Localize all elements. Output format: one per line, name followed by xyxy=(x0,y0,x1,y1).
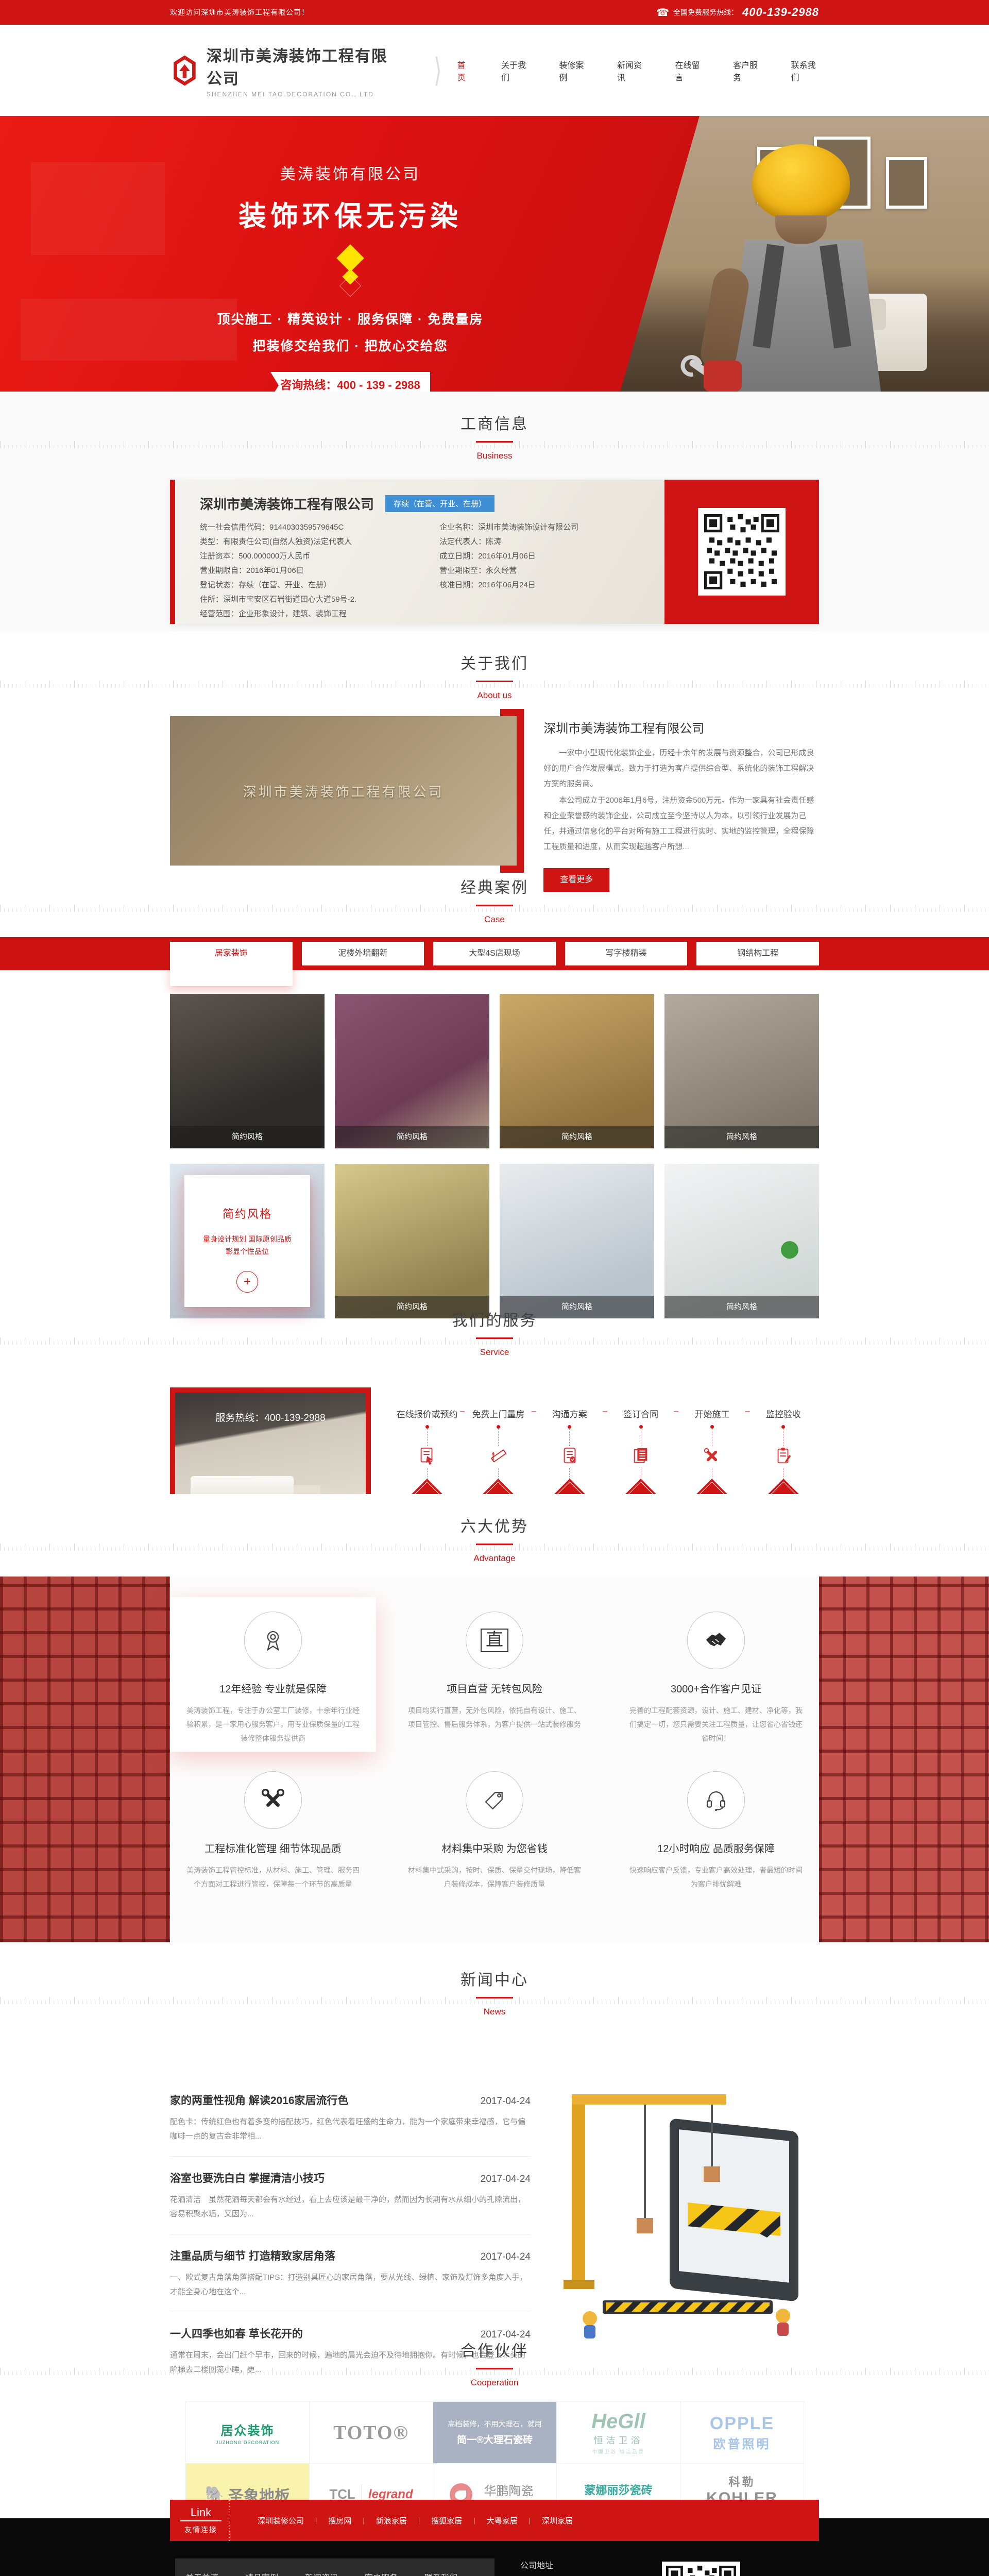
case-tab-strip: 居家装饰 泥楼外墙翻新 大型4S店现场 写字楼精装 钢结构工程 xyxy=(0,937,989,970)
news-illustration xyxy=(541,2084,819,2342)
footer: Link 友情连接 深圳装修公司| 搜房网| 新浪家居| 搜狐家居| 大粤家居|… xyxy=(0,2518,989,2576)
cases-title: 经典案例 xyxy=(0,875,989,897)
tab-office-finishing[interactable]: 写字楼精装 xyxy=(565,942,688,965)
about-subtitle: About us xyxy=(0,690,989,701)
page: 欢迎访问深圳市美涛装饰工程有限公司！ ☎ 全国免费服务热线： 400-139-2… xyxy=(0,0,989,2576)
diamond-icon xyxy=(335,248,366,289)
case-card[interactable]: 简约风格 xyxy=(335,994,489,1148)
logo[interactable]: 深圳市美涛装饰工程有限公司 SHENZHEN MEI TAO DECORATIO… xyxy=(170,43,403,98)
tag-icon xyxy=(466,1771,523,1829)
service-subtitle: Service xyxy=(0,1347,989,1358)
news-subtitle: News xyxy=(0,2007,989,2017)
business-qr-block xyxy=(664,480,819,624)
section-advantages: 六大优势 Advantage 12年经验 专业就是保障 美涛装饰工程，专注于办公… xyxy=(0,1494,989,1947)
nav-contact[interactable]: 联系我们 xyxy=(791,58,820,83)
news-item[interactable]: 浴室也要洗白白 掌握清洁小技巧2017-04-24 花洒清洁 虽然花洒每天都会有… xyxy=(170,2157,531,2234)
banner-company: 美涛装饰有限公司 xyxy=(206,161,494,184)
footer-col-contact: 联系我们 联系方式 在线留言 xyxy=(424,2571,484,2576)
friend-links-bar: Link 友情连接 深圳装修公司| 搜房网| 新浪家居| 搜狐家居| 大粤家居|… xyxy=(170,2500,819,2541)
about-heading: 深圳市美涛装饰工程有限公司 xyxy=(543,718,819,736)
header: 深圳市美涛装饰工程有限公司 SHENZHEN MEI TAO DECORATIO… xyxy=(0,25,989,116)
plan-icon xyxy=(560,1446,579,1468)
friend-link[interactable]: 搜狐家居 xyxy=(420,2515,473,2526)
business-info-left: 统一社会信用代码：9144030359579645C 类型：有限责任公司(自然人… xyxy=(200,520,439,621)
status-badge: 存续（在营、开业、在册） xyxy=(385,495,494,512)
partner-hegll[interactable]: HeGll恒洁卫浴中国卫浴 恒洁品质 xyxy=(557,2402,680,2464)
qr-code xyxy=(698,508,786,596)
service-hotline: 服务热线：400-139-2988 xyxy=(175,1410,366,1424)
advantage-card: 工程标准化管理 细节体现品质 美涛装饰工程管控标准，从材料、施工、管理、服务四个… xyxy=(170,1757,376,1911)
contract-icon xyxy=(631,1446,651,1468)
advantage-card: 直 项目直营 无转包风险 项目均实行直营，无外包风险，依托自有设计、施工、项目管… xyxy=(391,1597,598,1752)
logo-icon xyxy=(170,55,199,87)
partners-title: 合作伙伴 xyxy=(0,2338,989,2361)
phone-icon: ☎ xyxy=(656,6,669,19)
inspection-icon xyxy=(774,1446,793,1468)
friend-link[interactable]: 深圳装修公司 xyxy=(246,2515,315,2526)
business-title: 工商信息 xyxy=(0,411,989,434)
tab-steel-structure[interactable]: 钢结构工程 xyxy=(696,942,819,965)
business-card: 深圳市美涛装饰工程有限公司 存续（在营、开业、在册） 统一社会信用代码：9144… xyxy=(170,480,819,624)
wall-frame xyxy=(886,157,927,209)
advantage-card: 12小时响应 品质服务保障 快速响应客户反馈，专业客户高效处理，者最短的时间为客… xyxy=(613,1757,819,1911)
hotline-number: 400-139-2988 xyxy=(742,6,819,19)
headset-icon xyxy=(687,1771,745,1829)
worker-illustration xyxy=(716,144,886,392)
banner-hotline-button[interactable]: 咨询热线：400 - 139 - 2988 xyxy=(270,372,430,392)
advantages-title: 六大优势 xyxy=(0,1514,989,1536)
footer-col-cases: 精品案例 简约风格 简欧风格 中式风格 xyxy=(245,2571,305,2576)
cases-subtitle: Case xyxy=(0,914,989,925)
qr-code xyxy=(662,2562,740,2576)
main-nav: 首页 关于我们 装修案例 新闻资讯 在线留言 客户服务 联系我们 xyxy=(457,58,819,83)
hero-banner: 美涛装饰有限公司 装饰环保无污染 顶尖施工 · 精英设计 · 服务保障 · 免费… xyxy=(0,116,989,392)
section-cases: 经典案例 Case 居家装饰 泥楼外墙翻新 大型4S店现场 写字楼精装 钢结构工… xyxy=(0,855,989,1288)
about-title: 关于我们 xyxy=(0,651,989,673)
tools-icon xyxy=(244,1771,302,1829)
nav-service[interactable]: 客户服务 xyxy=(733,58,761,83)
news-item[interactable]: 注重品质与细节 打造精致家居角落2017-04-24 一、欧式复古角落角落搭配T… xyxy=(170,2234,531,2312)
nav-news[interactable]: 新闻资讯 xyxy=(617,58,645,83)
about-paragraph-1: 一家中小型现代化装饰企业，历经十余年的发展与资源整合，公司已形成良好的用户合作发… xyxy=(543,745,819,792)
construction-icon xyxy=(702,1446,722,1468)
banner-slogan-2: 把装修交给我们 · 把放心交给您 xyxy=(206,336,494,354)
section-service: 我们的服务 Service 服务热线：400-139-2988 在线报价或预约 … xyxy=(0,1288,989,1494)
about-paragraph-2: 本公司成立于2006年1月6号，注册资金500万元。作为一家具有社会责任感和企业… xyxy=(543,793,819,855)
tab-home-decor[interactable]: 居家装饰 xyxy=(170,942,293,986)
news-item[interactable]: 家的两重性视角 解读2016家居流行色2017-04-24 配色卡：传统红色也有… xyxy=(170,2079,531,2157)
partner-toto[interactable]: TOTO® xyxy=(310,2402,433,2464)
topbar-hotline: ☎ 全国免费服务热线： 400-139-2988 xyxy=(656,6,819,19)
case-card[interactable]: 简约风格 xyxy=(664,994,819,1148)
measure-icon xyxy=(488,1446,508,1468)
footer-qr: 扫一扫关注我们 xyxy=(662,2562,740,2576)
logo-subtitle: SHENZHEN MEI TAO DECORATION CO., LTD xyxy=(207,91,403,98)
nav-message[interactable]: 在线留言 xyxy=(675,58,704,83)
section-business: 工商信息 Business 深圳市美涛装饰工程有限公司 存续（在营、开业、在册）… xyxy=(0,392,989,631)
footer-nav-panel: 关于美涛 公司简介 品牌文化 精英团队 精品案例 简约风格 简欧风格 中式风格 … xyxy=(175,2558,494,2576)
business-subtitle: Business xyxy=(0,451,989,461)
banner-headline: 装饰环保无污染 xyxy=(206,193,494,234)
advantages-subtitle: Advantage xyxy=(0,1553,989,1564)
friend-link[interactable]: 大粤家居 xyxy=(475,2515,529,2526)
partner-juzhong[interactable]: 居众装饰JUZHONG DECORATION xyxy=(186,2402,310,2464)
advantage-card: 12年经验 专业就是保障 美涛装饰工程，专注于办公室工厂装修，十余年行业经验积累… xyxy=(170,1597,376,1752)
ruler-divider xyxy=(229,2500,232,2541)
handshake-icon xyxy=(687,1612,745,1669)
about-photo: 深圳市美涛装饰工程有限公司 xyxy=(170,716,517,866)
service-title: 我们的服务 xyxy=(0,1308,989,1330)
news-title: 新闻中心 xyxy=(0,1967,989,1990)
footer-col-about: 关于美涛 公司简介 品牌文化 精英团队 xyxy=(185,2571,245,2576)
welcome-text: 欢迎访问深圳市美涛装饰工程有限公司！ xyxy=(170,7,309,18)
friend-link[interactable]: 新浪家居 xyxy=(365,2515,418,2526)
advantage-card: 3000+合作客户见证 完善的工程配套资源，设计、施工、建材、净化等，我们搞定一… xyxy=(613,1597,819,1752)
nav-cases[interactable]: 装修案例 xyxy=(559,58,588,83)
hard-hat xyxy=(752,144,850,222)
footer-col-news: 新闻资讯 公司新闻 行业新闻 装修攻略 xyxy=(305,2571,365,2576)
quote-icon xyxy=(417,1446,437,1468)
partner-jianyi[interactable]: 高档装修，不用大理石，就用简一®大理石瓷砖 xyxy=(433,2402,557,2464)
section-news: 新闻中心 News 家的两重性视角 解读2016家居流行色2017-04-24 … xyxy=(0,1947,989,2318)
case-card[interactable]: 简约风格 xyxy=(170,994,325,1148)
case-card[interactable]: 简约风格 xyxy=(500,994,654,1148)
advantage-card: 材料集中采购 为您省钱 材料集中式采购，按时、保质、保量交付现场，降低客户装修成… xyxy=(391,1757,598,1911)
footer-contact: 公司地址 深圳市宝安区石岩街道田心大道59号 联系电话 400-139-2988… xyxy=(520,2558,654,2576)
company-name: 深圳市美涛装饰工程有限公司 xyxy=(200,494,374,513)
partner-opple[interactable]: OPPLE欧普照明 xyxy=(680,2402,804,2464)
topbar: 欢迎访问深圳市美涛装饰工程有限公司！ ☎ 全国免费服务热线： 400-139-2… xyxy=(0,0,989,25)
partners-subtitle: Cooperation xyxy=(0,2378,989,2388)
business-info-right: 企业名称：深圳市美涛装饰设计有限公司 法定代表人：陈涛 成立日期：2016年01… xyxy=(439,520,649,621)
banner-slogan-1: 顶尖施工 · 精英设计 · 服务保障 · 免费量房 xyxy=(206,309,494,328)
nav-about[interactable]: 关于我们 xyxy=(501,58,530,83)
nav-home[interactable]: 首页 xyxy=(457,58,471,83)
friend-link[interactable]: 深圳家居 xyxy=(531,2515,584,2526)
tab-wall-renovation[interactable]: 泥楼外墙翻新 xyxy=(302,942,424,965)
section-partners: 合作伙伴 Cooperation 居众装饰JUZHONG DECORATION … xyxy=(0,2318,989,2518)
footer-col-service: 客户服务 我们的服务 品牌结构工艺 xyxy=(365,2571,424,2576)
medal-icon xyxy=(244,1612,302,1669)
direct-icon: 直 xyxy=(466,1612,523,1669)
link-label: Link 友情连接 xyxy=(180,2506,221,2535)
friend-link[interactable]: 搜房网 xyxy=(317,2515,363,2526)
tab-4s-store[interactable]: 大型4S店现场 xyxy=(433,942,556,965)
header-divider: ⟩ xyxy=(434,52,442,90)
case-grid: 简约风格 简约风格 简约风格 简约风格 简约风格 量身设计规划 国际原创品质彰显… xyxy=(170,994,819,1318)
feature-title: 简约风格 xyxy=(184,1205,310,1222)
section-about: 关于我们 About us 深圳市美涛装饰工程有限公司 深圳市美涛装饰工程有限公… xyxy=(0,631,989,855)
hotline-label: 全国免费服务热线： xyxy=(673,7,738,18)
logo-title: 深圳市美涛装饰工程有限公司 xyxy=(207,43,403,89)
